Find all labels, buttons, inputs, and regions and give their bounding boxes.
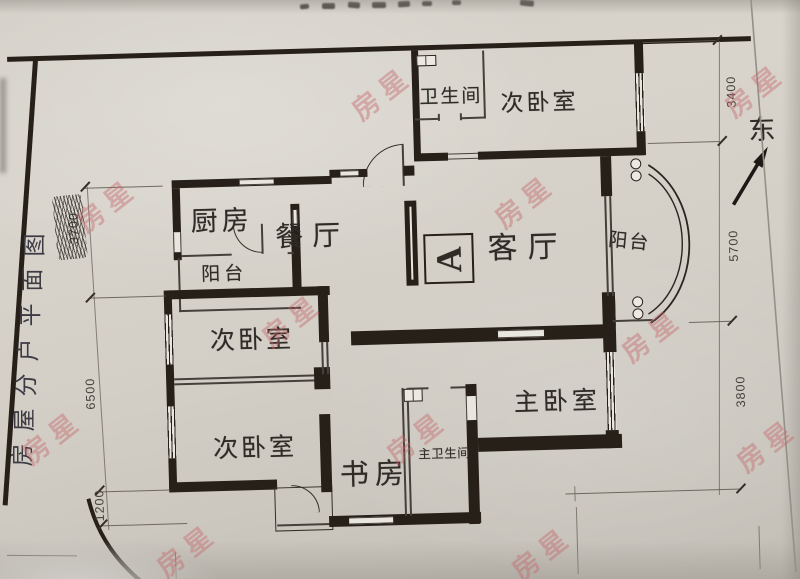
paper-edge-layer bbox=[0, 0, 800, 579]
paper-edge-line bbox=[751, 0, 796, 572]
floor-plan-photo: A 卫生间 次卧室 厨房 餐厅 客厅 阳台 阳台 次卧室 次卧室 书房 主卫生间… bbox=[0, 0, 800, 579]
